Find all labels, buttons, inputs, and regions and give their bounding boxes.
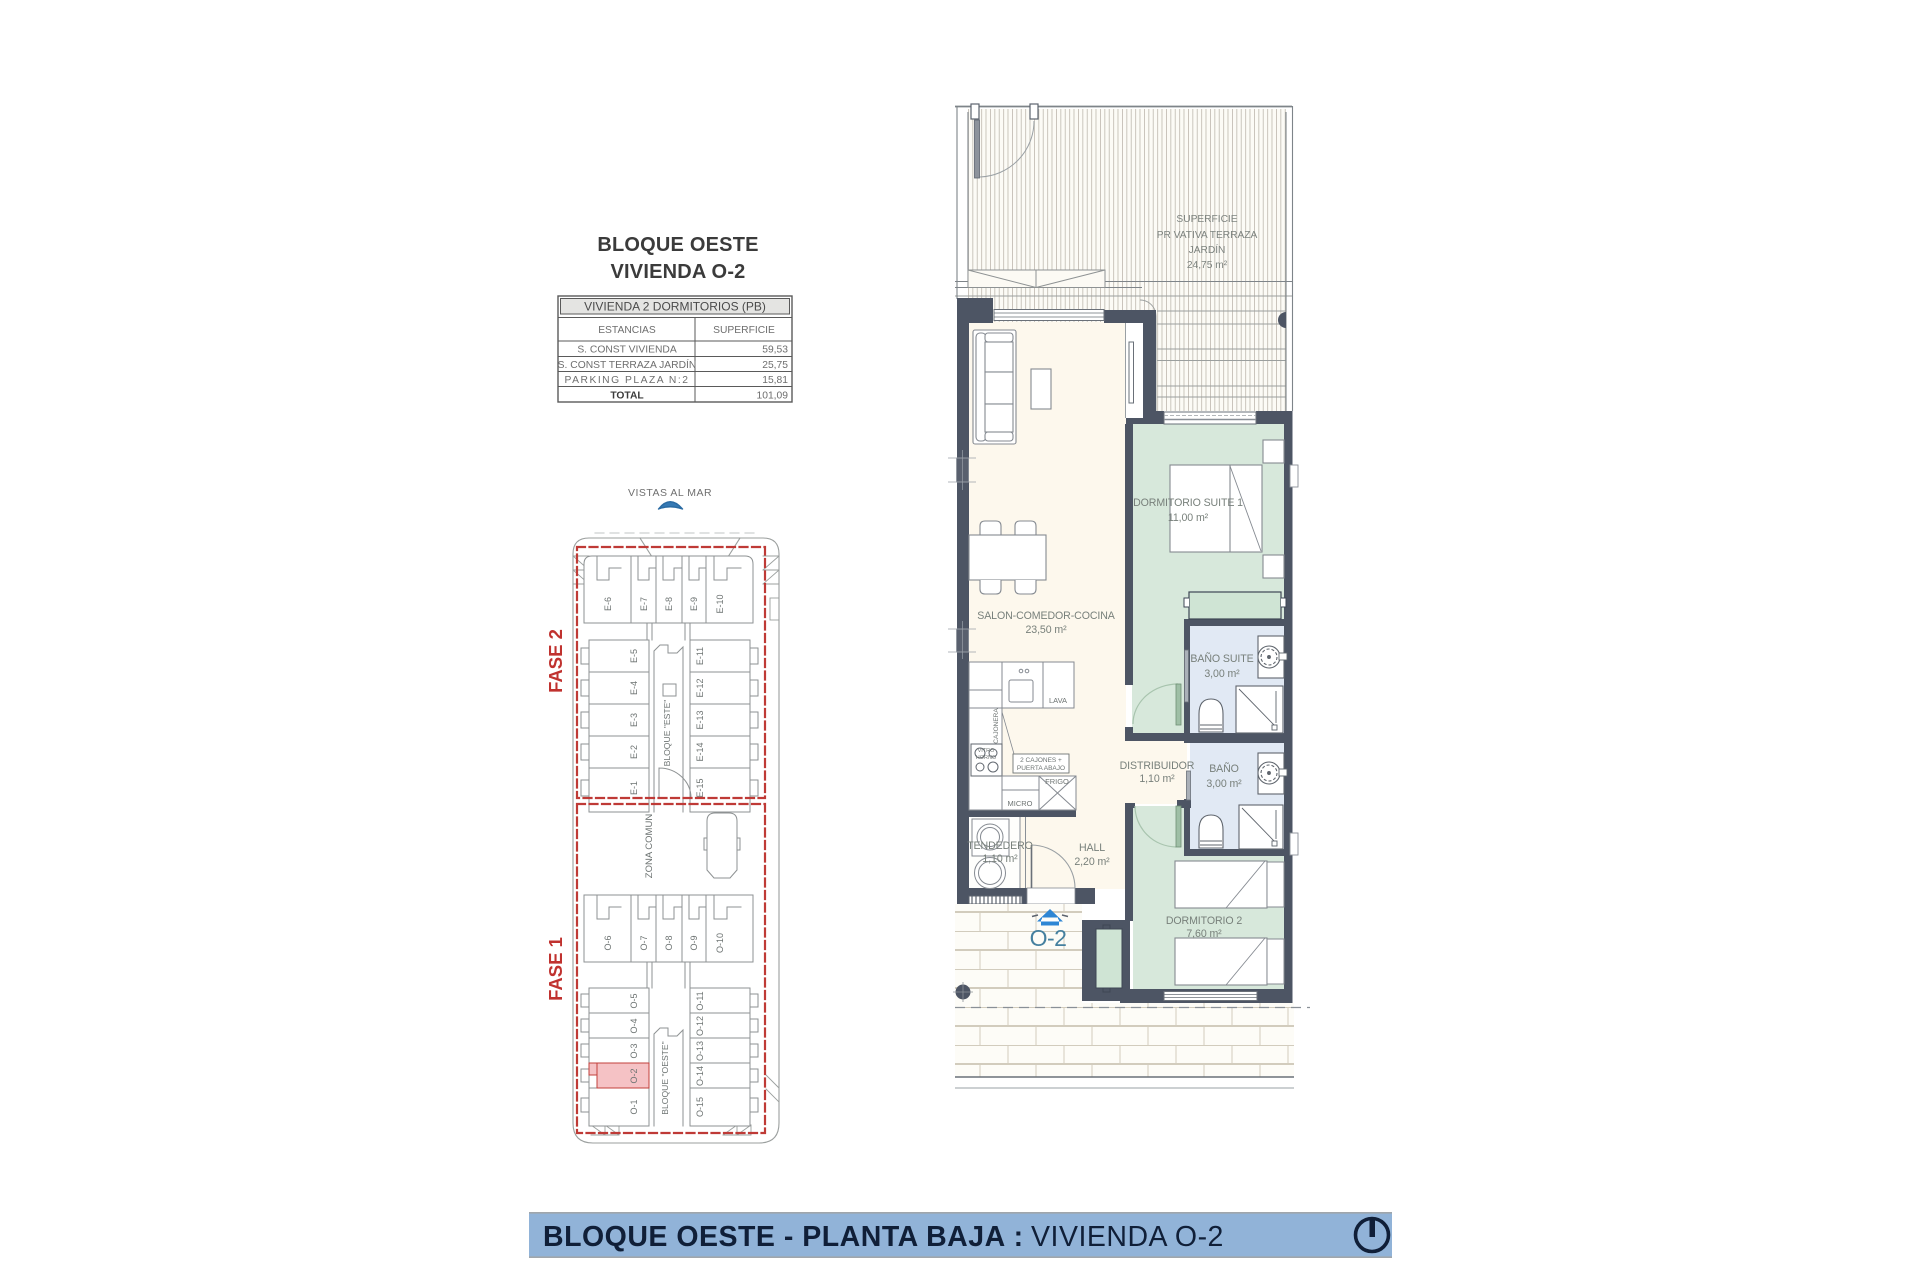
- svg-text:2,20 m²: 2,20 m²: [1074, 856, 1110, 868]
- svg-text:BAÑO SUITE: BAÑO SUITE: [1190, 652, 1253, 665]
- svg-text:O-2: O-2: [1030, 925, 1067, 951]
- svg-text:3,00 m²: 3,00 m²: [1204, 668, 1240, 680]
- svg-text:25,75: 25,75: [762, 360, 788, 371]
- svg-text:E-1: E-1: [629, 781, 639, 795]
- svg-text:E-14: E-14: [695, 742, 705, 761]
- svg-text:O-3: O-3: [629, 1043, 639, 1058]
- svg-text:JARDÍN: JARDÍN: [1189, 243, 1226, 256]
- svg-text:BLOQUE "ESTE": BLOQUE "ESTE": [662, 700, 672, 767]
- svg-text:CAJONERA: CAJONERA: [993, 708, 1000, 744]
- svg-text:ZONA COMUN: ZONA COMUN: [644, 814, 655, 879]
- svg-text:2 CAJONES +: 2 CAJONES +: [1020, 757, 1062, 764]
- svg-text:O-8: O-8: [664, 935, 674, 950]
- svg-text:DORMITORIO 2: DORMITORIO 2: [1166, 915, 1243, 927]
- svg-text:15,81: 15,81: [762, 375, 788, 386]
- svg-text:HORNO: HORNO: [976, 755, 997, 761]
- svg-text:E-9: E-9: [689, 597, 699, 611]
- svg-text:ESTANCIAS: ESTANCIAS: [598, 325, 656, 336]
- svg-text:O-6: O-6: [603, 935, 613, 950]
- svg-text:E-7: E-7: [639, 597, 649, 611]
- svg-text:E-8: E-8: [664, 597, 674, 611]
- svg-text:O-12: O-12: [695, 1016, 705, 1036]
- svg-text:1,10 m²: 1,10 m²: [1139, 773, 1175, 785]
- svg-text:O-13: O-13: [695, 1041, 705, 1061]
- svg-text:PR VATIVA TERRAZA: PR VATIVA TERRAZA: [1157, 230, 1258, 241]
- svg-text:O-11: O-11: [695, 991, 705, 1010]
- svg-text:24,75 m²: 24,75 m²: [1187, 260, 1228, 271]
- svg-text:SUPERFICIE: SUPERFICIE: [1176, 214, 1237, 225]
- svg-text:23,50 m²: 23,50 m²: [1025, 624, 1067, 636]
- svg-text:O-4: O-4: [629, 1018, 639, 1033]
- svg-text:MICRO: MICRO: [1008, 799, 1033, 808]
- svg-text:VIVIENDA 2 DORMITORIOS (PB): VIVIENDA 2 DORMITORIOS (PB): [584, 300, 766, 314]
- svg-text:3,00 m²: 3,00 m²: [1206, 778, 1242, 790]
- svg-text:DISTRIBUIDOR: DISTRIBUIDOR: [1120, 760, 1195, 772]
- svg-text:LAVA: LAVA: [1049, 696, 1067, 705]
- svg-text:E-5: E-5: [629, 649, 639, 663]
- svg-text:O-15: O-15: [695, 1097, 705, 1117]
- svg-text:VISTAS AL MAR: VISTAS AL MAR: [628, 487, 712, 499]
- svg-text:BLOQUE OESTE: BLOQUE OESTE: [597, 234, 758, 256]
- svg-text:O-1: O-1: [629, 1099, 639, 1114]
- svg-text:TOTAL: TOTAL: [610, 391, 643, 402]
- svg-text:E-6: E-6: [603, 597, 613, 611]
- svg-text:7,60 m²: 7,60 m²: [1186, 928, 1222, 940]
- svg-text:SALON-COMEDOR-COCINA: SALON-COMEDOR-COCINA: [977, 610, 1116, 622]
- svg-text:O-14: O-14: [695, 1066, 705, 1086]
- svg-text:HALL: HALL: [1079, 842, 1105, 854]
- svg-text:101,09: 101,09: [757, 391, 789, 402]
- svg-text:FASE 1: FASE 1: [545, 937, 566, 1001]
- svg-text:O-9: O-9: [689, 935, 699, 950]
- svg-text:FASE 2: FASE 2: [545, 629, 566, 693]
- svg-text:E-4: E-4: [629, 681, 639, 695]
- svg-text:11,00 m²: 11,00 m²: [1168, 512, 1209, 524]
- svg-text:VITRO: VITRO: [978, 748, 996, 754]
- svg-text:59,53: 59,53: [762, 345, 788, 356]
- svg-text:BAÑO: BAÑO: [1209, 762, 1239, 775]
- svg-text:O-2: O-2: [629, 1068, 639, 1083]
- svg-text:SUPERFICIE: SUPERFICIE: [713, 325, 775, 336]
- svg-text:E-13: E-13: [695, 710, 705, 729]
- svg-text:PARKING PLAZA N:2: PARKING PLAZA N:2: [565, 375, 690, 386]
- svg-text:DORMITORIO SUITE 1: DORMITORIO SUITE 1: [1133, 497, 1243, 509]
- svg-text:E-10: E-10: [715, 594, 725, 613]
- svg-text:PUERTA ABAJO: PUERTA ABAJO: [1017, 765, 1065, 772]
- svg-text:1,10 m²: 1,10 m²: [982, 853, 1018, 865]
- svg-text:FRIGO: FRIGO: [1045, 777, 1069, 786]
- svg-text:TENDEDERO: TENDEDERO: [967, 840, 1033, 852]
- svg-text:E-3: E-3: [629, 713, 639, 727]
- svg-text:O-10: O-10: [715, 933, 725, 953]
- svg-text:BLOQUE OESTE - PLANTA BAJA : V: BLOQUE OESTE - PLANTA BAJA : VIVIENDA O-…: [543, 1221, 1224, 1253]
- svg-text:O-5: O-5: [629, 993, 639, 1008]
- svg-text:BLOQUE "OESTE": BLOQUE "OESTE": [660, 1041, 670, 1114]
- svg-text:O-7: O-7: [639, 935, 649, 950]
- svg-text:E-11: E-11: [695, 647, 705, 665]
- svg-text:E-2: E-2: [629, 745, 639, 759]
- svg-text:VIVIENDA O-2: VIVIENDA O-2: [610, 261, 745, 283]
- svg-text:S. CONST VIVIENDA: S. CONST VIVIENDA: [577, 345, 677, 356]
- svg-text:E-12: E-12: [695, 678, 705, 697]
- svg-text:S. CONST TERRAZA JARDÍN: S. CONST TERRAZA JARDÍN: [558, 358, 697, 371]
- svg-text:E-15: E-15: [695, 778, 705, 797]
